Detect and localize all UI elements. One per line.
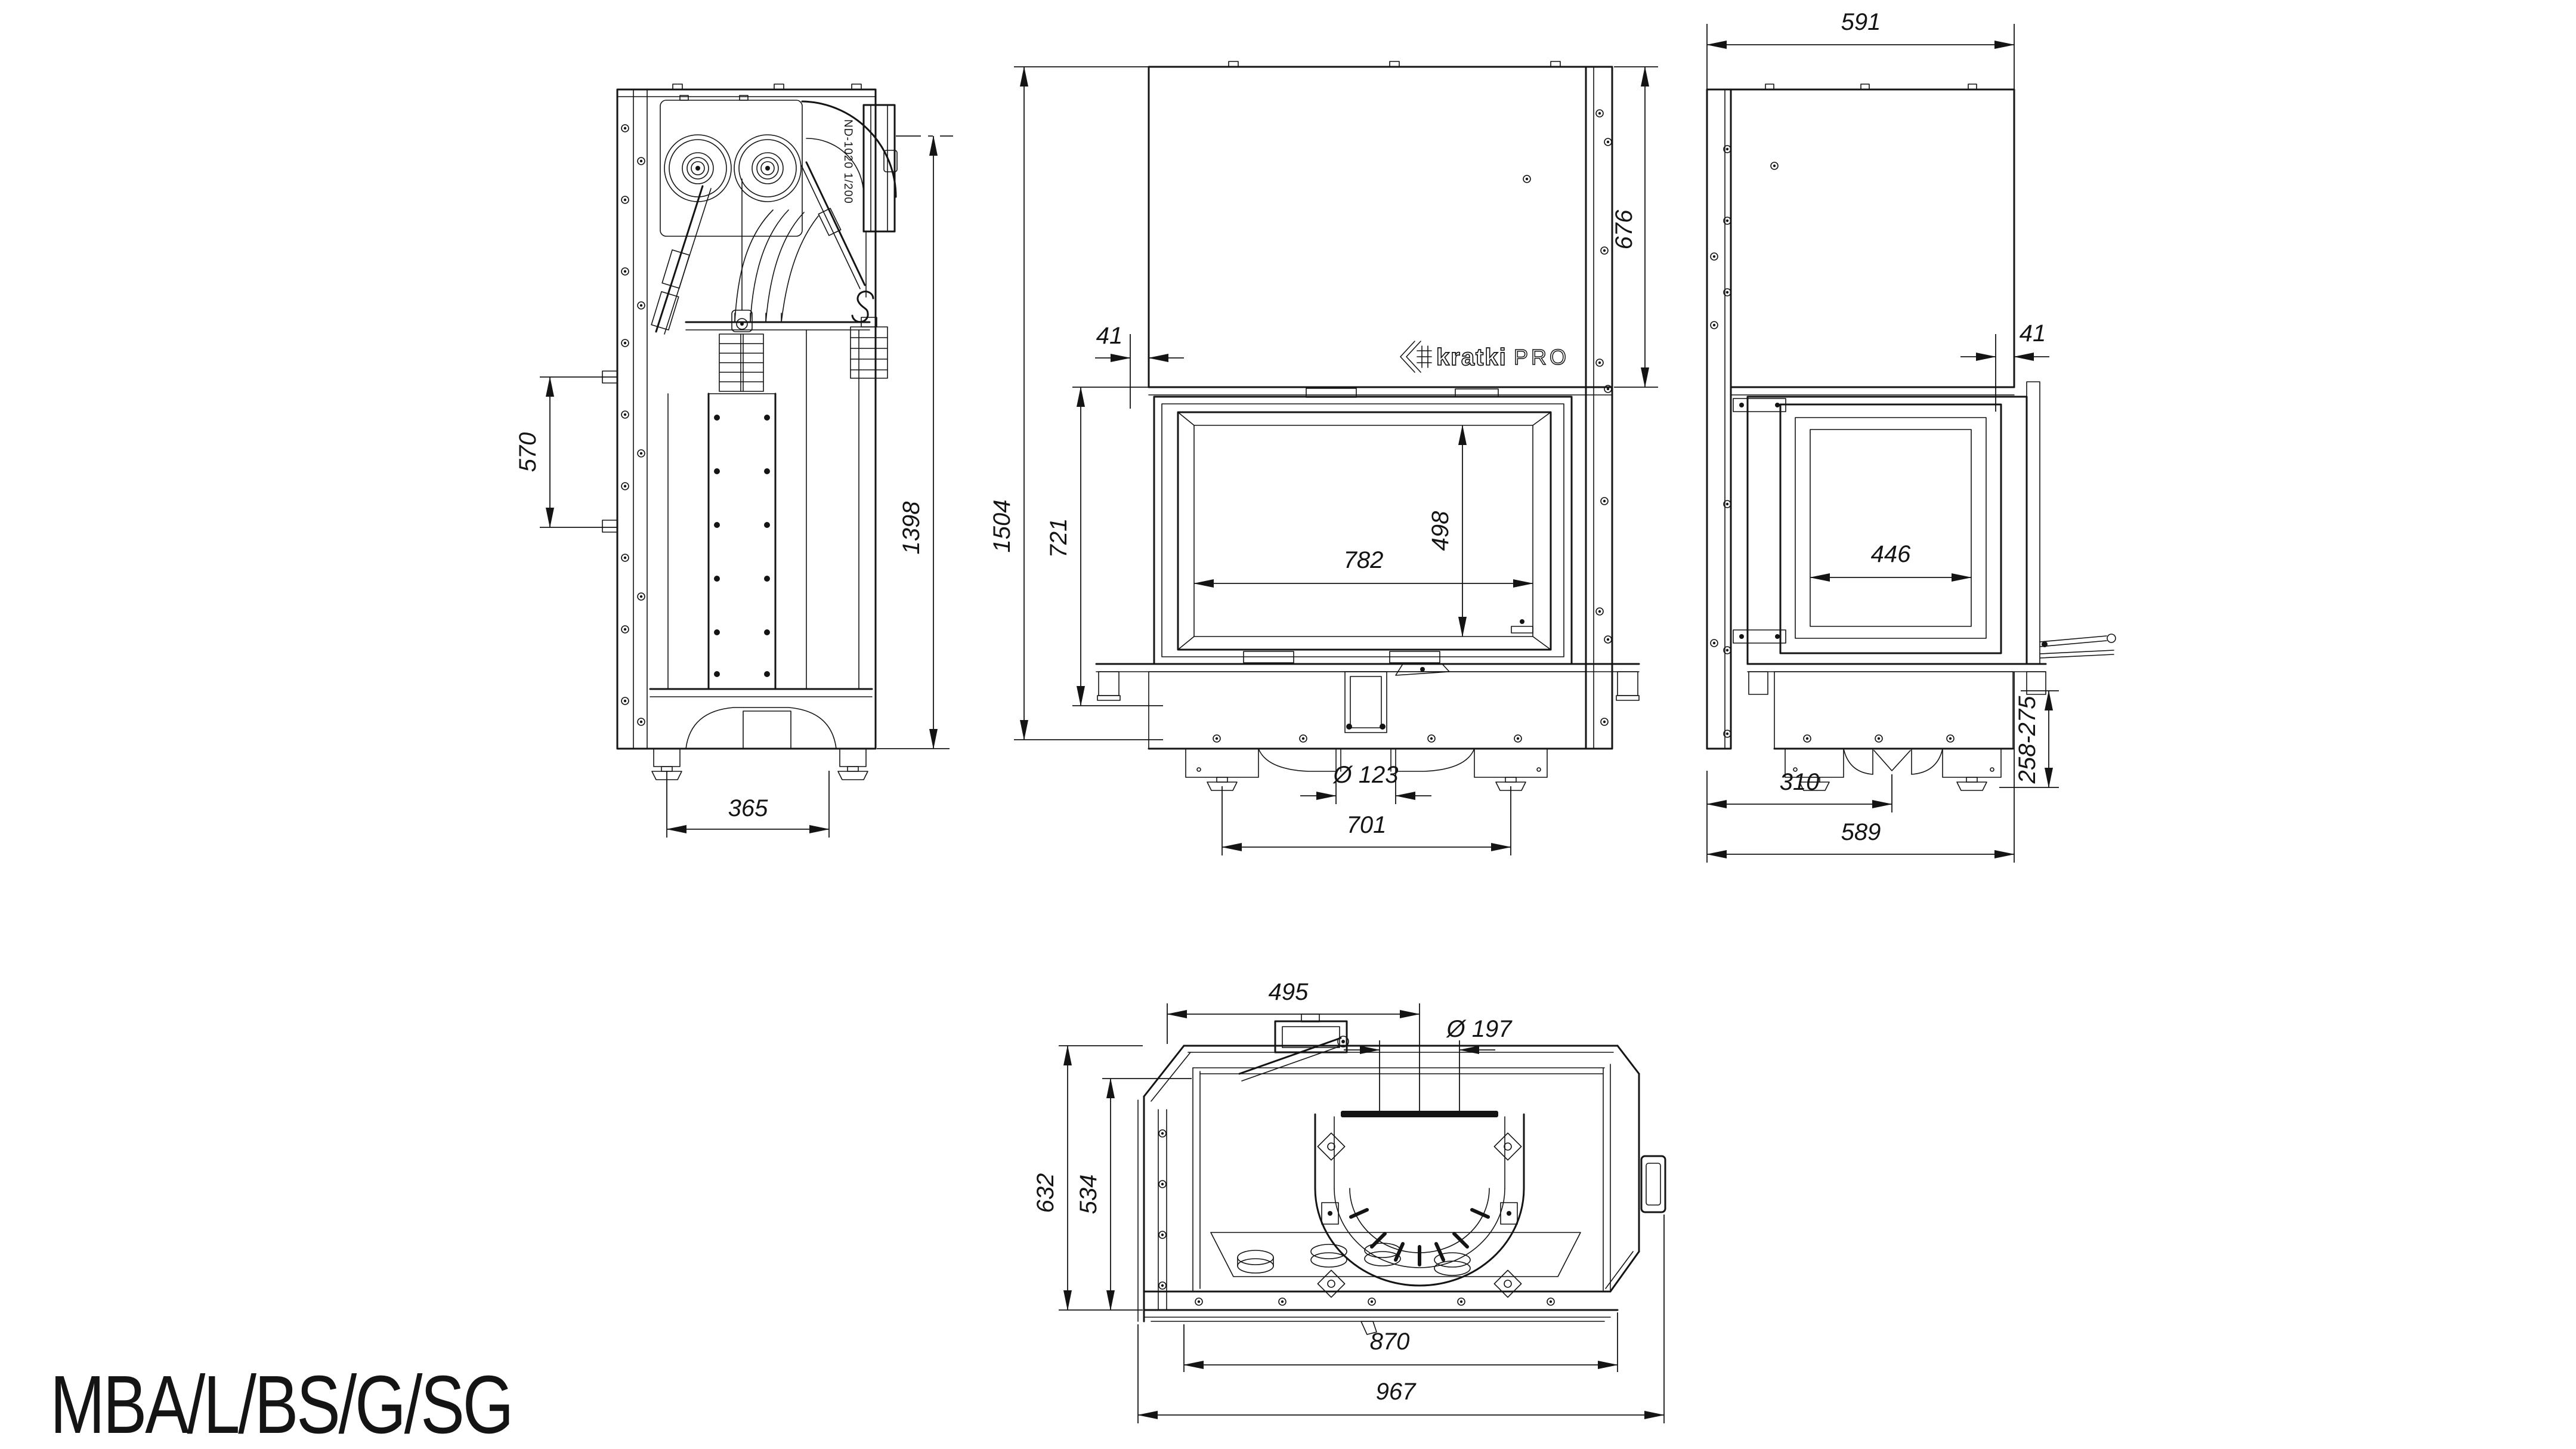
dim-top-534: 534 xyxy=(1075,1079,1192,1310)
right-view: 591 xyxy=(1707,9,2116,863)
model-label: MBA/L/BS/G/SG xyxy=(50,1359,512,1449)
svg-text:41: 41 xyxy=(1096,323,1123,349)
svg-text:1398: 1398 xyxy=(898,501,924,555)
dim-front-1504: 1504 xyxy=(989,67,1163,740)
svg-text:Ø 197: Ø 197 xyxy=(1446,1016,1513,1042)
svg-text:721: 721 xyxy=(1046,518,1072,558)
dim-front-flue-123: Ø 123 xyxy=(1300,762,1431,804)
dim-side-365: 365 xyxy=(667,771,829,838)
door-handle xyxy=(2040,634,2116,658)
dim-side-570: 570 xyxy=(515,377,617,527)
dim-right-446: 446 xyxy=(1810,541,1971,577)
floor-bosses xyxy=(1238,1243,1470,1275)
exchanger-tubes xyxy=(735,210,818,322)
svg-text:870: 870 xyxy=(1370,1328,1410,1355)
svg-text:Ø 123: Ø 123 xyxy=(1332,762,1399,788)
top-left-screws xyxy=(1159,1130,1166,1289)
svg-text:589: 589 xyxy=(1841,819,1881,845)
flue-collar xyxy=(1315,1111,1524,1297)
logo-chevron-icon xyxy=(1400,341,1415,372)
dim-right-41: 41 xyxy=(1960,320,2049,412)
brand-name: kratki xyxy=(1436,344,1507,370)
s-hook-counterweight xyxy=(851,233,887,378)
brand-suffix: PRO xyxy=(1514,345,1569,369)
dim-top-flue-197: Ø 197 xyxy=(1344,1016,1513,1111)
svg-text:495: 495 xyxy=(1269,979,1309,1005)
top-view: 495 Ø 197 632 534 870 xyxy=(1032,979,1665,1423)
convection-fans xyxy=(660,95,802,236)
dim-front-721: 721 xyxy=(1046,387,1163,706)
right-back-panel-screws xyxy=(1711,146,1731,737)
svg-text:967: 967 xyxy=(1376,1379,1417,1405)
top-handle-bracket xyxy=(1641,1156,1665,1212)
svg-text:498: 498 xyxy=(1427,511,1454,551)
dim-front-498: 498 xyxy=(1427,425,1462,637)
svg-text:446: 446 xyxy=(1871,541,1911,567)
dim-right-310: 310 xyxy=(1707,769,1892,863)
svg-text:365: 365 xyxy=(728,795,768,821)
technical-drawing-page: ND-1020 1/200 xyxy=(0,0,2576,1449)
door-counterweight xyxy=(719,179,763,391)
brand-logo: kratki PRO xyxy=(1400,341,1569,372)
side-feet xyxy=(652,749,868,780)
front-view: kratki PRO 782 498 xyxy=(989,61,1658,855)
front-fascia-screws xyxy=(1195,1298,1554,1305)
dim-right-589: 589 xyxy=(1707,672,2014,863)
dim-right-258-275: 258-275 xyxy=(1999,691,2059,787)
svg-text:1504: 1504 xyxy=(989,500,1015,553)
side-view: ND-1020 1/200 xyxy=(515,84,953,838)
svg-text:534: 534 xyxy=(1075,1175,1102,1215)
dim-front-676: 676 xyxy=(1611,67,1658,387)
front-base xyxy=(1096,664,1639,749)
duct-label: ND-1020 1/200 xyxy=(842,119,854,204)
svg-text:782: 782 xyxy=(1344,547,1384,573)
dim-front-782: 782 xyxy=(1194,547,1533,583)
svg-text:570: 570 xyxy=(515,432,541,472)
dim-right-591: 591 xyxy=(1707,9,2014,89)
front-right-panel-screws xyxy=(1523,110,1612,725)
right-door xyxy=(1733,382,2040,664)
dim-front-701: 701 xyxy=(1222,786,1511,855)
svg-text:41: 41 xyxy=(2020,320,2046,347)
flue-duct-elbow: ND-1020 1/200 xyxy=(802,101,897,231)
svg-text:258-275: 258-275 xyxy=(2014,696,2040,784)
svg-text:591: 591 xyxy=(1841,9,1881,35)
svg-text:310: 310 xyxy=(1780,769,1820,795)
dim-front-41: 41 xyxy=(1095,323,1184,409)
damper-actuator xyxy=(1239,1014,1349,1081)
front-door xyxy=(1154,388,1572,675)
drawing-canvas: ND-1020 1/200 xyxy=(0,0,2576,1449)
svg-text:676: 676 xyxy=(1611,209,1637,249)
svg-text:632: 632 xyxy=(1032,1173,1059,1213)
svg-text:701: 701 xyxy=(1347,812,1387,838)
